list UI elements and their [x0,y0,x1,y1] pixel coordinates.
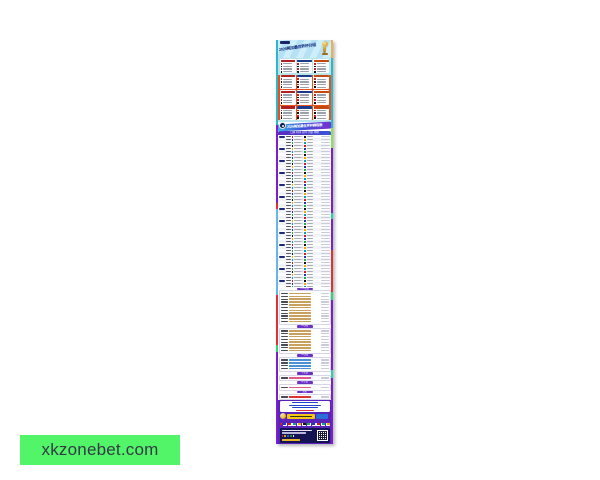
team-name-bar [294,169,301,170]
vs-bar [301,220,303,221]
team-name-bar [307,190,314,191]
placeholder-team-bar [289,350,311,352]
team-flag-icon [304,214,306,216]
match-time-bar [286,154,291,155]
placeholder-team-bar [289,359,311,361]
venue-bar [321,214,330,215]
team-flag-icon [297,115,299,117]
vs-bar [301,145,303,146]
team-name-bar [307,205,314,206]
venue-bar [321,196,330,197]
team-name-bar [283,100,292,101]
team-flag-icon [281,84,283,86]
schedule-poster-image[interactable]: 2026美加墨世界杯分组 2026美加墨世界杯赛程表 日期 时间 对阵 小组 场… [276,40,333,444]
venue-bar [321,175,330,176]
score-bar [321,342,329,343]
team-flag-icon [304,238,306,240]
vs-bar [301,247,303,248]
team-name-bar [300,71,309,72]
team-flag-icon [297,99,299,101]
social-icon [293,435,295,437]
team-name-bar [294,172,301,173]
team-name-bar [307,253,314,254]
team-name-bar [294,238,301,239]
team-flag-icon [292,268,294,270]
team-name-bar [294,142,301,143]
vs-bar [301,256,303,257]
team-flag-icon [292,259,294,261]
venue-bar [321,277,330,278]
team-name-bar [307,163,314,164]
qr-code-icon [317,430,328,441]
vs-bar [301,148,303,149]
team-name-bar [307,268,314,269]
team-name-bar [294,157,301,158]
team-name-bar [294,208,301,209]
team-flag-icon [292,136,294,138]
team-flag-icon [314,71,316,73]
group-team-row [314,70,329,73]
team-flag-icon [304,241,306,243]
team-flag-icon [292,142,294,144]
team-name-bar [307,145,314,146]
team-name-bar [317,79,326,80]
team-name-bar [283,79,292,80]
team-flag-icon [297,102,299,104]
cta-bar [282,439,300,442]
team-flag-icon [304,178,306,180]
team-flag-icon [292,250,294,252]
knockout-match-row [281,395,329,398]
team-flag-icon [314,110,316,112]
team-name-bar [307,250,314,251]
team-name-bar [300,87,309,88]
team-name-bar [317,71,326,72]
score-bar [321,330,329,331]
team-flag-icon [297,117,299,119]
match-time-bar [286,193,291,194]
team-name-bar [307,220,314,221]
team-name-bar [294,241,301,242]
match-time-bar [281,301,288,302]
team-name-bar [294,259,301,260]
team-flag-icon [292,238,294,240]
team-flag-icon [304,205,306,207]
team-name-bar [307,184,314,185]
placeholder-team-bar [289,318,311,320]
team-flag-icon [304,259,306,261]
team-flag-icon [304,256,306,258]
date-pill [279,256,285,258]
team-name-bar [294,148,301,149]
match-time-bar [286,217,291,218]
team-name-bar [283,71,292,72]
team-flag-icon [314,97,316,99]
team-flag-icon [292,277,294,279]
match-time-bar [286,181,291,182]
score-bar [321,313,329,314]
team-flag-icon [304,232,306,234]
team-flag-icon [292,190,294,192]
brand-tag [316,414,328,419]
venue-bar [321,226,330,227]
team-flag-icon [314,99,316,101]
team-flag-icon [297,68,299,70]
group-card [313,90,329,104]
match-date-cell [279,172,285,174]
group-card [313,59,329,73]
venue-bar [321,148,330,149]
group-team-row [281,117,296,120]
match-time-bar [286,190,291,191]
vs-bar [301,214,303,215]
match-time-bar [281,330,288,331]
date-pill [279,172,285,174]
team-name-bar [294,160,301,161]
group-stage-grid [278,58,331,122]
match-time-bar [286,241,291,242]
score-bar [321,321,329,322]
team-name-bar [294,175,301,176]
payment-flag-tile [292,423,296,426]
team-name-bar [317,81,326,82]
team-name-bar [294,187,301,188]
vs-bar [301,190,303,191]
team-flag-icon [292,169,294,171]
placeholder-team-bar [289,362,311,364]
score-bar [321,301,329,302]
team-flag-icon [292,187,294,189]
team-flag-icon [297,110,299,112]
team-flag-icon [281,112,283,114]
team-name-bar [307,202,314,203]
match-time-bar [281,339,288,340]
placeholder-team-bar [289,312,311,314]
stage-card [279,375,331,381]
vs-bar [301,139,303,140]
venue-bar [321,220,330,221]
match-time-bar [286,151,291,152]
venue-bar [321,241,330,242]
social-icon [282,435,284,437]
team-flag-icon [304,148,306,150]
venue-bar [321,139,330,140]
match-time-bar [281,315,288,316]
team-flag-icon [292,145,294,147]
placeholder-team-bar [289,339,311,341]
team-name-bar [307,274,314,275]
venue-bar [321,193,330,194]
group-team-row [297,86,312,89]
vs-bar [301,178,303,179]
team-name-bar [307,181,314,182]
date-pill [279,136,285,138]
flag-icon [283,423,286,425]
team-name-bar [294,253,301,254]
team-flag-icon [281,66,283,68]
team-name-bar [294,178,301,179]
payment-flag-tile [307,423,311,426]
vs-bar [301,253,303,254]
team-name-bar [317,102,326,103]
match-date-cell [279,232,285,234]
vs-bar [301,166,303,167]
match-time-bar [286,157,291,158]
match-time-bar [281,362,288,363]
team-flag-icon [304,265,306,267]
match-time-bar [286,160,291,161]
date-pill [279,196,285,198]
match-time-bar [286,271,291,272]
match-date-cell [279,256,285,258]
team-name-bar [294,265,301,266]
flag-icon [327,423,330,425]
team-name-bar [300,100,309,101]
team-flag-icon [304,229,306,231]
vs-bar [301,229,303,230]
team-flag-icon [292,151,294,153]
venue-bar [321,145,330,146]
team-flag-icon [314,102,316,104]
social-icon [290,435,292,437]
team-flag-icon [292,178,294,180]
team-name-bar [294,280,301,281]
team-name-bar [300,110,309,111]
team-name-bar [307,229,314,230]
vs-bar [301,205,303,206]
match-time-bar [286,136,291,137]
venue-bar [321,142,330,143]
team-name-bar [294,247,301,248]
date-pill [279,184,285,186]
vs-bar [301,163,303,164]
team-name-bar [294,271,301,272]
team-name-bar [307,244,314,245]
promo-banner [287,414,315,419]
team-flag-icon [304,187,306,189]
vs-bar [301,184,303,185]
date-pill [279,244,285,246]
payment-flag-tile [297,423,301,426]
group-team-row [281,70,296,73]
team-flag-icon [314,84,316,86]
team-flag-icon [304,262,306,264]
stage-card [279,328,331,354]
team-flag-icon [304,280,306,282]
team-name-bar [294,190,301,191]
team-flag-icon [292,232,294,234]
team-flag-icon [297,97,299,99]
match-time-bar [286,178,291,179]
match-date-cell [279,160,285,162]
flag-icon [293,423,296,425]
vs-bar [301,280,303,281]
venue-bar [321,235,330,236]
team-flag-icon [292,205,294,207]
team-flag-icon [281,78,283,80]
venue-bar [321,199,330,200]
group-team-row [314,86,329,89]
team-name-bar [294,220,301,221]
vs-bar [301,250,303,251]
team-name-bar [307,271,314,272]
team-name-bar [317,97,326,98]
team-name-bar [300,84,309,85]
team-name-bar [317,94,326,95]
team-flag-icon [292,172,294,174]
group-card [280,75,296,89]
team-flag-icon [292,271,294,273]
team-name-bar [283,118,292,119]
team-name-bar [317,87,326,88]
team-name-bar [307,175,314,176]
team-flag-icon [292,154,294,156]
match-date-cell [279,208,285,210]
team-flag-icon [297,94,299,96]
team-flag-icon [292,220,294,222]
team-flag-icon [281,117,283,119]
team-flag-icon [304,154,306,156]
venue-bar [321,190,330,191]
venue-bar [321,247,330,248]
team-name-bar [294,250,301,251]
payment-flag-tile [283,423,287,426]
match-time-bar [286,256,291,257]
match-time-bar [286,148,291,149]
venue-bar [321,274,330,275]
vs-bar [301,181,303,182]
team-name-bar [300,102,309,103]
match-time-bar [286,229,291,230]
stage-card [279,290,331,324]
team-flag-icon [292,196,294,198]
venue-bar [321,184,330,185]
vs-bar [301,223,303,224]
match-time-bar [286,202,291,203]
score-bar [321,359,329,360]
team-name-bar [307,226,314,227]
match-time-bar [286,235,291,236]
placeholder-team-bar [289,296,311,298]
match-time-bar [281,296,288,297]
match-time-bar [286,187,291,188]
team-name-bar [307,199,314,200]
team-flag-icon [292,163,294,165]
team-flag-icon [304,139,306,141]
team-flag-icon [292,157,294,159]
match-time-bar [286,259,291,260]
team-name-bar [300,118,309,119]
football-logo-icon [279,122,286,129]
venue-bar [321,208,330,209]
team-flag-icon [304,274,306,276]
placeholder-team-bar [289,396,311,398]
team-name-bar [307,154,314,155]
group-team-row [314,117,329,120]
team-flag-icon [304,277,306,279]
team-flag-icon [292,166,294,168]
venue-bar [321,253,330,254]
contact-text-bar [282,430,312,431]
placeholder-team-bar [289,341,311,343]
team-name-bar [307,160,314,161]
date-pill [279,280,285,282]
vs-bar [301,175,303,176]
venue-bar [321,259,330,260]
match-time-bar [286,169,291,170]
flag-icon [307,423,310,425]
team-flag-icon [292,184,294,186]
team-flag-icon [292,193,294,195]
team-name-bar [317,66,326,67]
match-date-cell [279,268,285,270]
team-flag-icon [297,112,299,114]
venue-bar [321,256,330,257]
payment-flag-tile [312,423,316,426]
team-flag-icon [281,110,283,112]
venue-bar [321,271,330,272]
team-name-bar [307,157,314,158]
team-name-bar [283,94,292,95]
team-name-bar [300,68,309,69]
flag-icon [317,423,320,425]
team-name-bar [294,184,301,185]
vs-bar [301,151,303,152]
flag-icon [298,423,301,425]
score-bar [321,315,329,316]
match-date-cell [279,280,285,282]
team-name-bar [294,277,301,278]
page-background: 2026美加墨世界杯分组 2026美加墨世界杯赛程表 日期 时间 对阵 小组 场… [0,0,600,480]
venue-bar [321,205,330,206]
vs-bar [301,262,303,263]
vs-bar [301,157,303,158]
team-name-bar [294,217,301,218]
group-team-row [297,101,312,104]
team-name-bar [294,193,301,194]
knockout-match-row [281,320,329,323]
match-time-bar [281,387,288,388]
venue-bar [321,172,330,173]
team-flag-icon [304,151,306,153]
team-flag-icon [304,223,306,225]
vs-bar [301,238,303,239]
team-name-bar [307,280,314,281]
team-name-bar [307,256,314,257]
team-flag-icon [292,274,294,276]
team-name-bar [317,118,326,119]
venue-bar [321,154,330,155]
group-card [297,59,313,73]
team-name-bar [283,87,292,88]
match-time-bar [281,313,288,314]
team-flag-icon [304,220,306,222]
team-flag-icon [292,199,294,201]
team-flag-icon [292,283,294,285]
flag-icon [288,423,291,425]
team-name-bar [294,139,301,140]
team-flag-icon [304,211,306,213]
team-flag-icon [292,217,294,219]
date-pill [279,148,285,150]
team-flag-icon [281,86,283,88]
venue-bar [321,169,330,170]
team-flag-icon [292,214,294,216]
team-name-bar [294,244,301,245]
match-time-bar [286,280,291,281]
vs-bar [301,169,303,170]
team-name-bar [294,199,301,200]
